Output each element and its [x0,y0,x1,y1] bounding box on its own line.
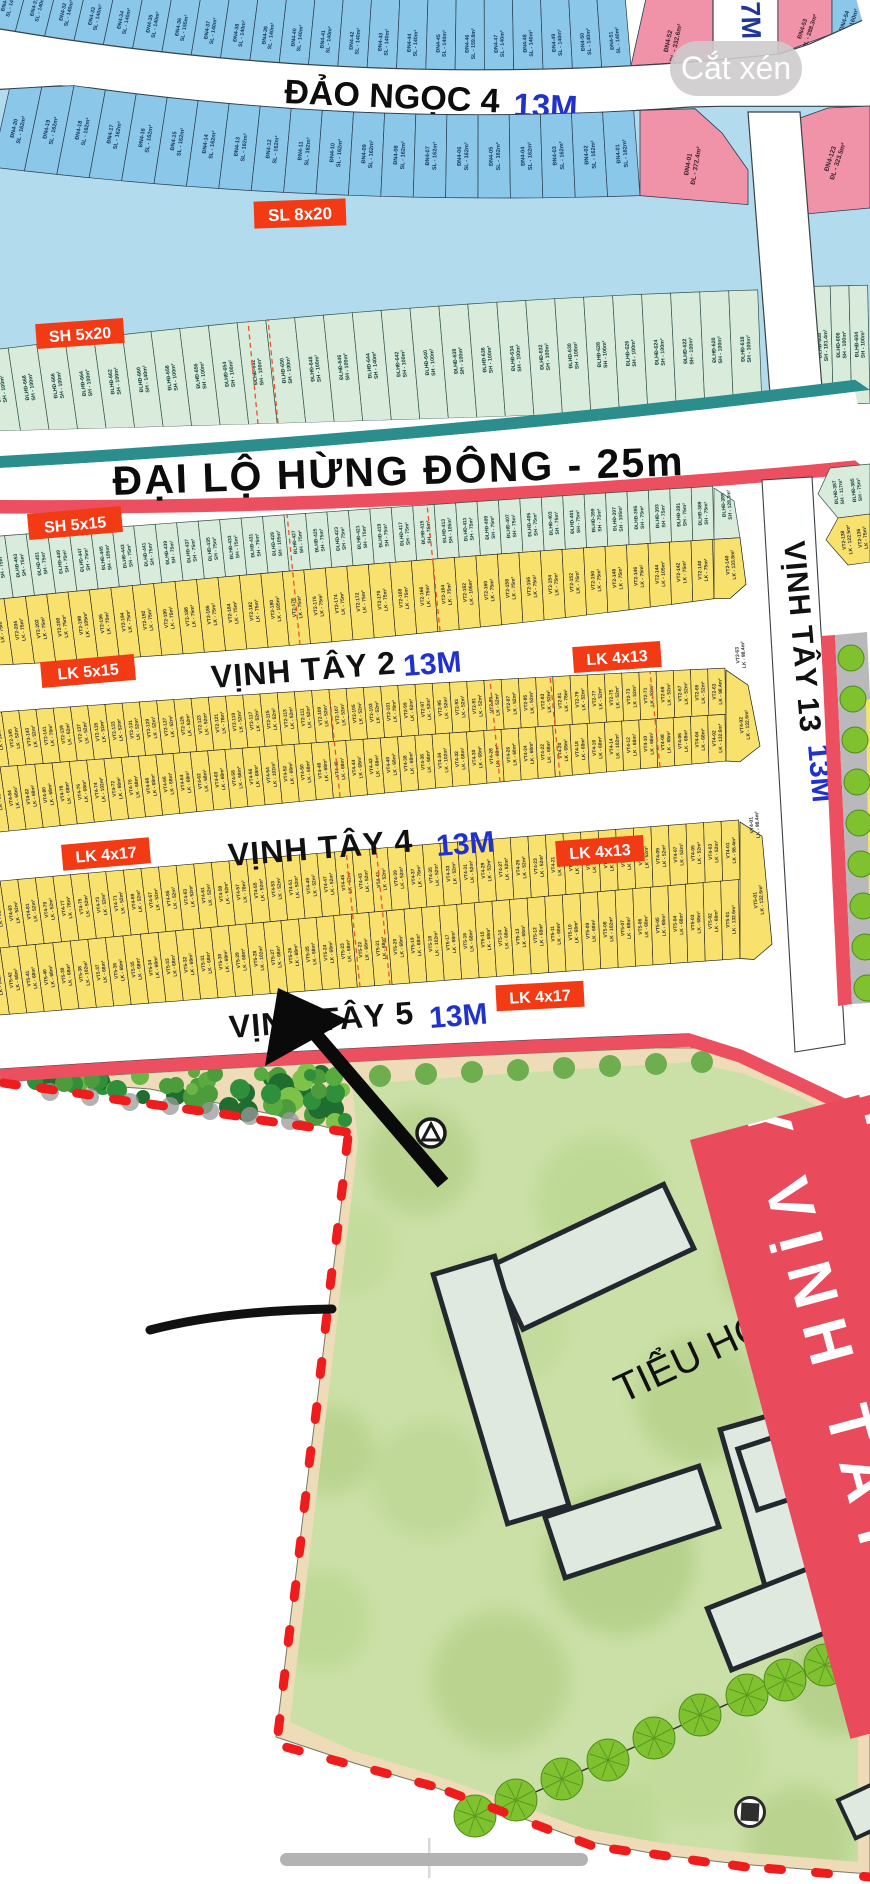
svg-text:VT4-40: VT4-40 [385,756,392,773]
svg-text:LK - 68m²: LK - 68m² [546,740,553,763]
svg-text:LK - 78m²: LK - 78m² [563,689,570,712]
svg-text:VT5-19: VT5-19 [410,937,417,954]
svg-text:Cắt xén: Cắt xén [681,50,791,86]
svg-text:LK - 75m²: LK - 75m² [532,574,539,597]
svg-text:VT2-91: VT2-91 [471,698,478,715]
svg-text:VT5-02: VT5-02 [707,913,713,929]
svg-text:VT5-17: VT5-17 [445,934,452,951]
svg-text:ĐN4-09: ĐN4-09 [361,144,368,164]
svg-text:VT5-20: VT5-20 [392,938,399,955]
svg-text:VT5-18: VT5-18 [427,935,434,952]
svg-text:LK 4x17: LK 4x17 [509,987,571,1007]
svg-text:LK - 75m²: LK - 75m² [618,566,625,589]
svg-text:VT4-28: VT4-28 [488,748,495,765]
svg-text:VT4-22: VT4-22 [540,744,547,761]
svg-text:VT4-25: VT4-25 [515,859,522,876]
svg-text:VT2-77: VT2-77 [591,690,598,707]
svg-text:LK - 52m²: LK - 52m² [580,688,587,711]
svg-text:VT5-01: VT5-01 [725,911,731,927]
svg-text:LK - 75m²: LK - 75m² [575,570,582,593]
svg-text:SH - 75m²: SH - 75m² [554,511,561,535]
svg-text:VT4-39: VT4-39 [393,870,400,887]
svg-text:SL - 140m²: SL - 140m² [528,30,535,57]
svg-text:VT4-37: VT4-37 [410,868,417,885]
svg-text:VT4-09: VT4-09 [655,848,662,865]
svg-text:VT4-05: VT4-05 [690,845,696,861]
svg-text:ĐN4-06: ĐN4-06 [457,147,463,166]
svg-text:LK - 68m²: LK - 68m² [563,739,570,762]
svg-text:VT4-34: VT4-34 [437,752,444,769]
svg-text:SL - 140m²: SL - 140m² [557,29,564,56]
svg-text:LK - 68m²: LK - 68m² [632,733,639,756]
svg-text:VT4-27: VT4-27 [498,861,505,878]
svg-text:LK - 52m²: LK - 52m² [696,842,703,865]
svg-text:SL 8x20: SL 8x20 [268,204,333,225]
svg-text:LK - 52m²: LK - 52m² [700,681,707,704]
svg-text:LK - 52m²: LK - 52m² [539,854,546,877]
svg-text:SL - 140m²: SL - 140m² [500,30,506,57]
svg-text:SL - 162m²: SL - 162m² [399,141,407,170]
svg-text:LK - 102m²: LK - 102m² [608,916,615,942]
svg-text:LK - 75m²: LK - 75m² [703,558,710,581]
svg-text:VT4-02: VT4-02 [711,730,717,746]
svg-text:VT4-23: VT4-23 [533,858,540,875]
svg-text:VT2-75: VT2-75 [608,689,615,706]
svg-text:VT4-03: VT4-03 [708,843,714,859]
svg-text:LK - 68m²: LK - 68m² [580,737,587,760]
svg-text:LK - 52m²: LK - 52m² [714,840,721,863]
svg-text:LK - 52m²: LK - 52m² [644,846,651,869]
svg-text:LK - 68m²: LK - 68m² [529,741,536,764]
svg-text:VT4-10: VT4-10 [643,735,650,752]
svg-text:VT4-24: VT4-24 [523,745,530,762]
svg-text:LK - 52m²: LK - 52m² [661,844,668,867]
svg-text:VT4-21: VT4-21 [550,856,557,873]
svg-text:SL - 162m²: SL - 162m² [558,141,566,170]
svg-text:VT5-04: VT5-04 [672,915,679,931]
svg-text:SL - 162m²: SL - 162m² [495,142,502,170]
svg-text:VT5-14: VT5-14 [497,930,504,947]
svg-text:VT4-35: VT4-35 [428,867,435,884]
svg-text:13M: 13M [402,646,463,683]
svg-text:SH - 100m²: SH - 100m² [842,331,849,359]
svg-text:LK - 132.6m²: LK - 132.6m² [718,723,725,753]
svg-text:LK - 98.4m²: LK - 98.4m² [754,811,762,839]
svg-text:SL - 140m²: SL - 140m² [442,30,449,57]
svg-text:LK - 75m²: LK - 75m² [596,568,603,591]
svg-text:LK - 52m²: LK - 52m² [521,856,528,879]
svg-text:VT2-83: VT2-83 [540,693,547,710]
svg-text:VT5-06: VT5-06 [637,918,644,935]
svg-text:VT5-05: VT5-05 [655,917,662,934]
svg-text:VT2-71: VT2-71 [643,687,650,704]
svg-text:SH - 100m²: SH - 100m² [746,335,753,363]
svg-text:LK - 52m²: LK - 52m² [679,843,686,866]
svg-text:LK - 68m²: LK - 68m² [556,922,563,945]
svg-text:LK - 68m²: LK - 68m² [683,729,690,752]
svg-text:SH - 75m²: SH - 75m² [532,512,539,536]
svg-text:LK - 68m²: LK - 68m² [591,919,598,942]
svg-text:LK - 52m²: LK - 52m² [683,682,690,705]
svg-text:LK - 98.4m²: LK - 98.4m² [731,837,738,864]
svg-text:ĐN4-46: ĐN4-46 [465,35,471,53]
svg-text:SL - 159.8m²: SL - 159.8m² [471,28,477,59]
svg-text:LK - 68m²: LK - 68m² [700,728,707,751]
svg-text:SH - 75m²: SH - 75m² [596,508,603,532]
svg-text:VT4-01: VT4-01 [725,842,731,858]
svg-text:LK - 75m²: LK - 75m² [553,572,560,595]
svg-text:LK - 68m²: LK - 68m² [696,911,703,934]
svg-text:VT2-99: VT2-99 [402,702,409,719]
svg-text:SL - 162m²: SL - 162m² [526,142,534,170]
svg-text:LK - 132.6m²: LK - 132.6m² [731,905,738,935]
svg-text:SH - 128.3m²: SH - 128.3m² [726,489,734,520]
svg-text:LK - 68m²: LK - 68m² [538,923,545,946]
svg-text:VT4-33: VT4-33 [445,865,452,882]
svg-text:VT2-97: VT2-97 [420,701,427,718]
svg-text:VT4-16: VT4-16 [591,739,598,756]
svg-text:LK - 68m²: LK - 68m² [597,736,604,759]
svg-text:VT2-79: VT2-79 [574,691,581,708]
svg-text:ĐN4-01: ĐN4-01 [615,144,622,164]
svg-text:ĐN4-08: ĐN4-08 [393,145,400,164]
svg-text:VT4-32: VT4-32 [454,751,461,768]
svg-text:VT2-67: VT2-67 [677,685,684,701]
svg-text:LK - 52m²: LK - 52m² [666,683,673,706]
svg-text:LK - 52m²: LK - 52m² [615,686,622,709]
svg-text:SH - 75m²: SH - 75m² [575,510,582,534]
svg-text:SH - 100m²: SH - 100m² [717,336,724,364]
svg-text:VT4-04: VT4-04 [694,731,700,747]
svg-text:LK - 75m²: LK - 75m² [639,564,646,587]
svg-text:VT4-14: VT4-14 [608,738,615,755]
svg-text:VT2-85: VT2-85 [523,694,530,711]
svg-text:SH - 75m²: SH - 75m² [639,505,646,529]
svg-text:LK - 68m²: LK - 68m² [649,732,656,755]
svg-text:ĐN4-02: ĐN4-02 [584,145,591,165]
svg-text:SH - 75m²: SH - 75m² [682,503,689,527]
svg-text:VT4-18: VT4-18 [574,741,581,758]
svg-text:SH - 75m²: SH - 75m² [661,504,668,528]
svg-text:SL - 162m²: SL - 162m² [431,142,439,170]
svg-text:LK - 98.4m²: LK - 98.4m² [740,641,748,669]
svg-text:VT5-08: VT5-08 [602,921,609,938]
svg-text:13M: 13M [435,826,496,863]
svg-text:VT5-12: VT5-12 [532,927,539,944]
svg-text:SH - 105m²: SH - 105m² [618,505,625,531]
svg-text:LK - 68m²: LK - 68m² [666,731,673,754]
svg-text:VT4-12: VT4-12 [626,737,633,754]
svg-text:VT4-31: VT4-31 [463,864,470,881]
svg-text:VT2-87: VT2-87 [506,695,513,712]
svg-text:LK - 68m²: LK - 68m² [679,912,686,935]
svg-text:LK - 52m²: LK - 52m² [546,690,553,713]
svg-text:VT2-95: VT2-95 [437,700,444,717]
svg-text:VT2-93: VT2-93 [454,699,461,716]
svg-text:VT4-08: VT4-08 [660,734,667,751]
svg-text:SL - 162m²: SL - 162m² [589,140,597,169]
svg-text:ĐN4-05: ĐN4-05 [489,147,495,166]
svg-text:ĐN4-03: ĐN4-03 [552,146,559,165]
svg-text:LK - 102m²: LK - 102m² [614,733,621,759]
svg-text:SL - 162m²: SL - 162m² [463,142,470,170]
svg-text:VT2-81: VT2-81 [557,692,564,709]
svg-text:SH - 181.4m²: SH - 181.4m² [823,329,830,361]
svg-text:VT2-69: VT2-69 [660,686,667,703]
svg-text:VT4-07: VT4-07 [673,846,680,862]
svg-text:VT5-10: VT5-10 [567,924,574,941]
svg-text:VT2-65: VT2-65 [694,684,700,700]
svg-text:LK - 68m²: LK - 68m² [661,913,668,936]
svg-text:SH - 100m²: SH - 100m² [860,330,867,358]
svg-text:VT5-07: VT5-07 [620,920,627,937]
svg-text:SL - 140m²: SL - 140m² [413,29,420,56]
svg-text:LK - 68m²: LK - 68m² [714,909,721,932]
svg-text:LK - 68m²: LK - 68m² [643,915,650,938]
svg-text:VT5-03: VT5-03 [690,914,696,930]
svg-text:VT4-38: VT4-38 [402,755,409,772]
svg-text:LK - 52m²: LK - 52m² [529,691,536,714]
svg-text:VT4-06: VT4-06 [677,733,684,749]
svg-text:VT2-63: VT2-63 [711,683,717,699]
svg-text:VT5-11: VT5-11 [550,926,557,942]
svg-text:LK - 52m²: LK - 52m² [597,687,604,710]
svg-text:LK - 68m²: LK - 68m² [573,920,580,943]
svg-text:SH - 75m²: SH - 75m² [703,501,710,525]
svg-text:ĐN4-04: ĐN4-04 [520,146,526,166]
svg-text:LK - 105m²: LK - 105m² [660,561,667,587]
svg-text:VT2-73: VT2-73 [626,688,633,705]
svg-text:LK - 98.4m²: LK - 98.4m² [718,678,725,705]
svg-text:VT4-36: VT4-36 [420,753,427,770]
svg-text:LK - 75m²: LK - 75m² [682,560,689,583]
svg-text:VT4-26: VT4-26 [505,746,512,763]
svg-text:VT4-30: VT4-30 [471,749,478,766]
svg-text:ĐN4-07: ĐN4-07 [425,146,431,165]
svg-text:VT5-15: VT5-15 [480,931,487,948]
svg-text:13M: 13M [428,998,489,1035]
svg-text:VT5-16: VT5-16 [462,932,469,949]
svg-text:LK - 52m²: LK - 52m² [632,685,639,708]
svg-text:LK - 68m²: LK - 68m² [521,925,528,948]
svg-text:VT5-13: VT5-13 [515,928,522,945]
svg-text:LK - 68m²: LK - 68m² [626,916,633,939]
svg-text:VT4-29: VT4-29 [480,862,487,879]
svg-text:7M: 7M [735,1,766,40]
svg-text:VT5-09: VT5-09 [585,922,592,939]
